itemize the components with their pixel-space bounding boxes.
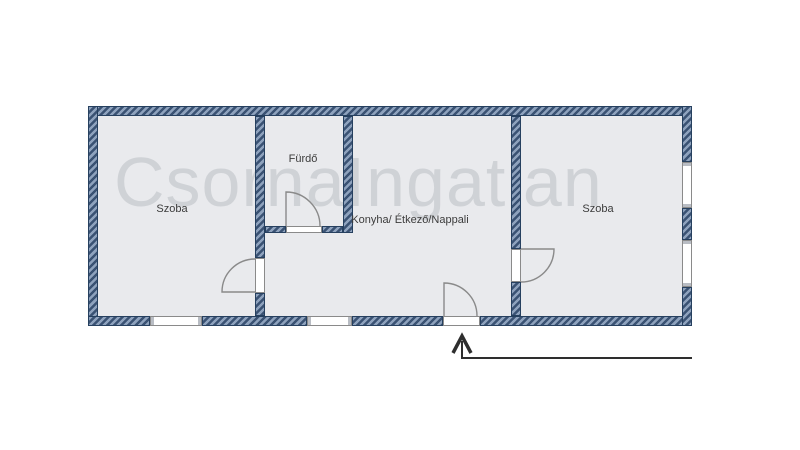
wall-outer-left bbox=[88, 106, 98, 326]
door-opening-entrance bbox=[443, 316, 480, 326]
entrance-arrow-head bbox=[453, 336, 471, 353]
wall-divider-left-room bbox=[255, 116, 265, 258]
wall-outer-right-segment bbox=[682, 287, 692, 326]
wall-outer-bottom-segment bbox=[202, 316, 307, 326]
room-label-konyha-etkezo-nappali: Konyha/ Étkező/Nappali bbox=[351, 214, 468, 226]
window-symbol-right-upper bbox=[682, 162, 692, 208]
wall-bathroom-bottom bbox=[322, 226, 343, 233]
wall-outer-bottom-segment bbox=[352, 316, 443, 326]
room-label-szoba-right: Szoba bbox=[582, 203, 613, 215]
door-opening-bathroom bbox=[286, 226, 322, 233]
window-symbol-bottom-middle bbox=[307, 316, 352, 326]
wall-outer-top bbox=[88, 106, 692, 116]
wall-outer-right-segment bbox=[682, 106, 692, 162]
wall-outer-bottom-segment bbox=[480, 316, 692, 326]
window-symbol-bottom-left bbox=[150, 316, 202, 326]
entrance-arrow-line bbox=[462, 341, 692, 358]
door-opening-left-room bbox=[255, 258, 265, 293]
wall-bathroom-bottom bbox=[265, 226, 286, 233]
wall-divider-left-room bbox=[255, 293, 265, 316]
wall-divider-right-room bbox=[511, 116, 521, 249]
wall-divider-right-room bbox=[511, 282, 521, 316]
room-label-szoba-left: Szoba bbox=[156, 203, 187, 215]
wall-outer-right-segment bbox=[682, 208, 692, 240]
floor-plan: CsornaIngatlan Szoba Fürdő Konyha/ Étkez… bbox=[0, 0, 800, 450]
window-symbol-right-lower bbox=[682, 240, 692, 287]
room-label-furdo: Fürdő bbox=[289, 153, 318, 165]
door-opening-right-room bbox=[511, 249, 521, 282]
wall-outer-bottom-segment bbox=[88, 316, 150, 326]
